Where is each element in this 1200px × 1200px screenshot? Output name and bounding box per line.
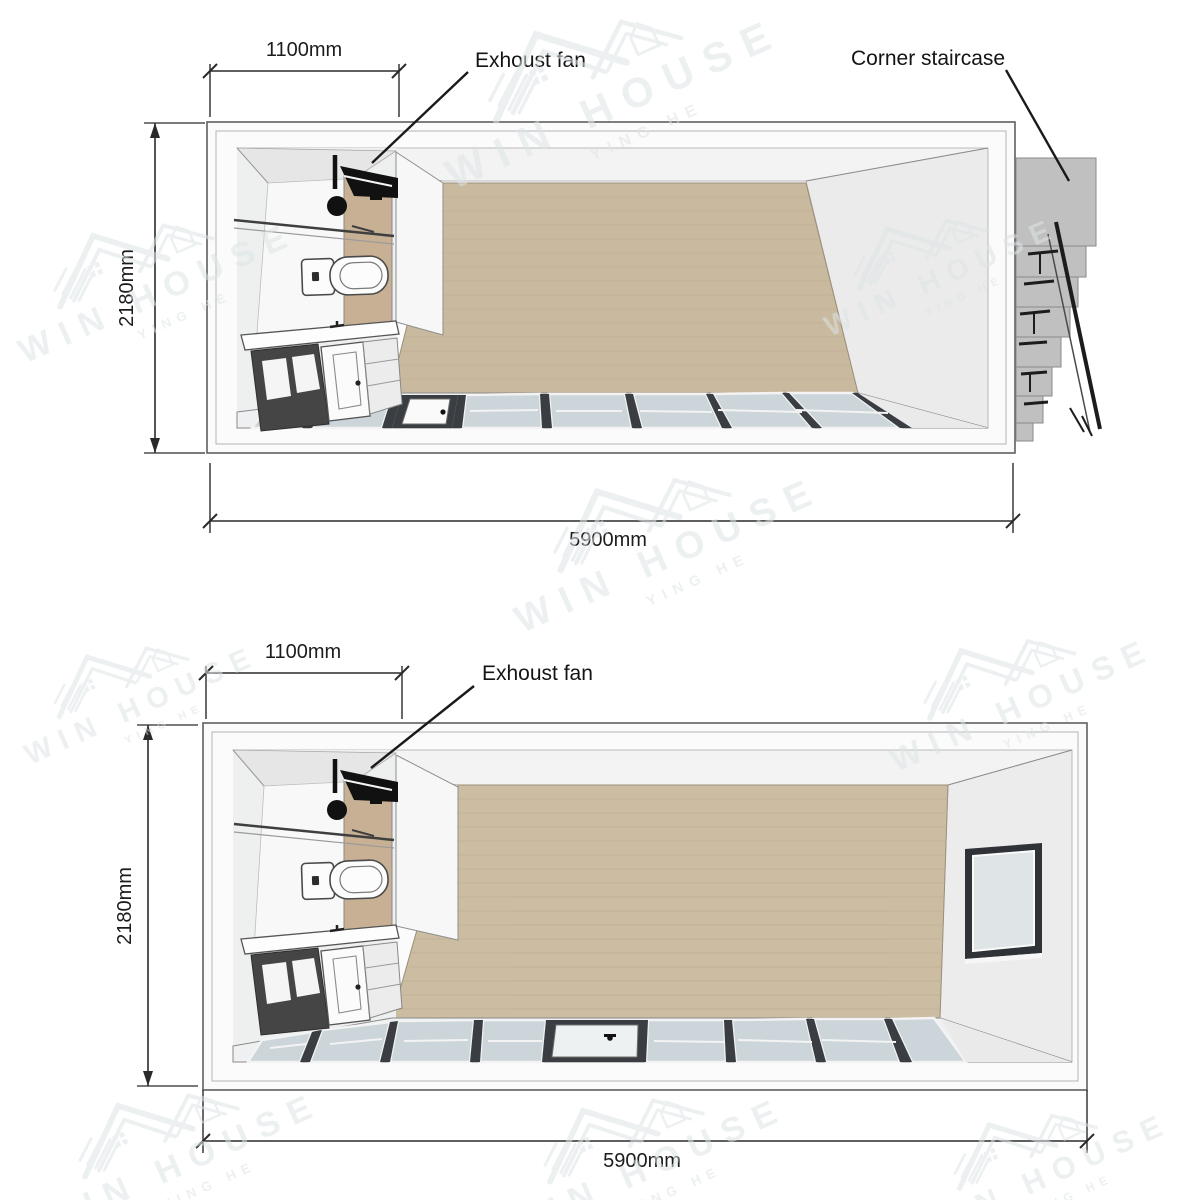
corner-staircase-label: Corner staircase [851, 47, 1005, 70]
window-band-bottom [233, 1018, 1072, 1062]
side-window [965, 843, 1042, 964]
wood-floor-top [390, 183, 858, 393]
bathroom-width-label-bottom: 1100mm [265, 641, 341, 663]
exhaust-fan-label-bottom: Exhoust fan [482, 662, 593, 685]
dimension-bathroom-width-top: 1100mm [203, 39, 406, 117]
bathroom-partition-bottom [396, 755, 458, 940]
wood-floor-bottom [392, 785, 948, 1018]
floor-plan-sheet: WIN HOUSE YING HE [0, 0, 1200, 1200]
corner-staircase [1016, 158, 1100, 441]
floor-plan-drawing: WIN HOUSE YING HE [0, 0, 1200, 1200]
height-label-bottom: 2180mm [114, 867, 136, 945]
dimension-height-bottom: 2180mm [114, 725, 198, 1086]
bathroom-width-label-top: 1100mm [266, 39, 342, 61]
bathroom-partition-top [396, 152, 443, 335]
dimension-length-top: 5900mm [203, 463, 1020, 551]
entry-door-bottom [542, 1020, 648, 1062]
